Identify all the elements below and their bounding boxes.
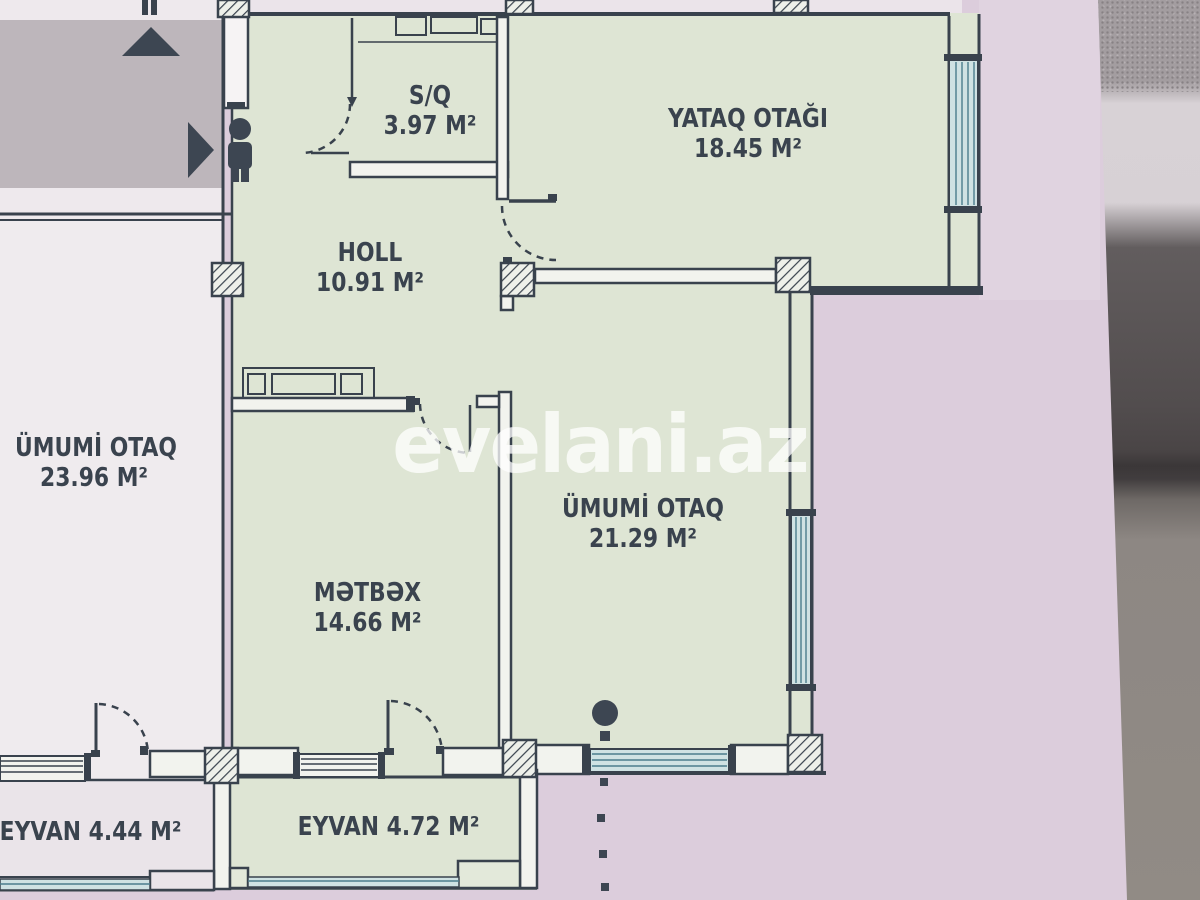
elevator-icon (151, 0, 157, 15)
room-area: 14.66 M² (286, 608, 450, 638)
room-name: ÜMUMİ OTAQ (15, 433, 177, 463)
balcony-step (230, 868, 248, 888)
label-eyvan-left: EYVAN 4.44 M² (0, 817, 164, 847)
right-arrow-icon (188, 122, 214, 178)
room-name: EYVAN 4.72 M² (298, 812, 480, 842)
wardrobe (243, 368, 374, 398)
label-holl: HOLL 10.91 M² (286, 238, 454, 298)
window-umumi-right (786, 509, 816, 691)
door-arc-sq (301, 104, 350, 153)
balcony-step (150, 871, 214, 890)
room-name: YATAQ OTAĞI (668, 104, 828, 134)
up-arrow-icon (122, 27, 180, 56)
elevator-icon (142, 0, 148, 15)
balcony-step (458, 861, 520, 888)
person-icon (228, 118, 252, 182)
room-area: 3.97 M² (346, 111, 514, 141)
door-arc-kitchen-balcony (391, 701, 442, 753)
room-name: ÜMUMİ OTAQ (562, 494, 724, 524)
label-eyvan-center: EYVAN 4.72 M² (298, 812, 463, 842)
label-umumi-otaq-left: ÜMUMİ OTAQ 23.96 M² (15, 433, 173, 493)
room-name: S/Q (409, 81, 451, 111)
section-marker (592, 700, 618, 891)
room-name: MƏTBƏX (314, 578, 421, 608)
label-yataq-otagi: YATAQ OTAĞI 18.45 M² (622, 104, 874, 164)
room-name: EYVAN 4.44 M² (0, 817, 181, 847)
room-area: 10.91 M² (286, 268, 454, 298)
window-kitchen-bottom (293, 752, 385, 779)
floorplan-photo: S/Q 3.97 M² YATAQ OTAĞI 18.45 M² HOLL 10… (0, 0, 1200, 900)
window-bedroom-right (944, 54, 982, 213)
bathroom-fixtures (396, 17, 497, 35)
entrance-door-leaf (224, 16, 248, 108)
balcony-glazing-center (248, 877, 459, 887)
watermark: evelani.az (353, 398, 847, 491)
door-arc-bedroom (502, 206, 556, 260)
room-name: HOLL (338, 238, 403, 268)
room-area: 21.29 M² (561, 524, 726, 554)
label-sq: S/Q 3.97 M² (346, 81, 514, 141)
label-metbex: MƏTBƏX 14.66 M² (286, 578, 450, 638)
plan-paper: S/Q 3.97 M² YATAQ OTAĞI 18.45 M² HOLL 10… (0, 0, 1200, 900)
label-umumi-otaq-main: ÜMUMİ OTAQ 21.29 M² (561, 494, 726, 554)
window-umumi-bottom (582, 745, 736, 774)
room-area: 18.45 M² (622, 134, 874, 164)
window-leftroom-bottom (0, 753, 91, 781)
room-area: 23.96 M² (15, 463, 173, 493)
balcony-glazing-left (0, 879, 150, 890)
